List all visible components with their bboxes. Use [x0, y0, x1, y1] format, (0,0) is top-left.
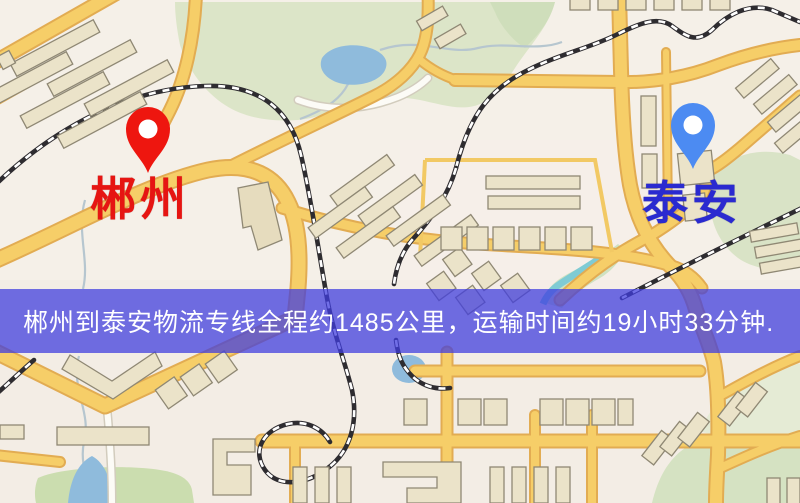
destination-pin-icon [663, 99, 723, 171]
route-info-banner: 郴州到泰安物流专线全程约1485公里，运输时间约19小时33分钟. [0, 289, 800, 353]
route-info-text: 郴州到泰安物流专线全程约1485公里，运输时间约19小时33分钟. [0, 303, 774, 339]
destination-city-label: 泰安 [642, 181, 742, 227]
map-background [0, 0, 800, 503]
map-canvas [0, 0, 800, 503]
origin-city-label: 郴州 [90, 177, 190, 223]
origin-pin-icon [118, 103, 178, 175]
